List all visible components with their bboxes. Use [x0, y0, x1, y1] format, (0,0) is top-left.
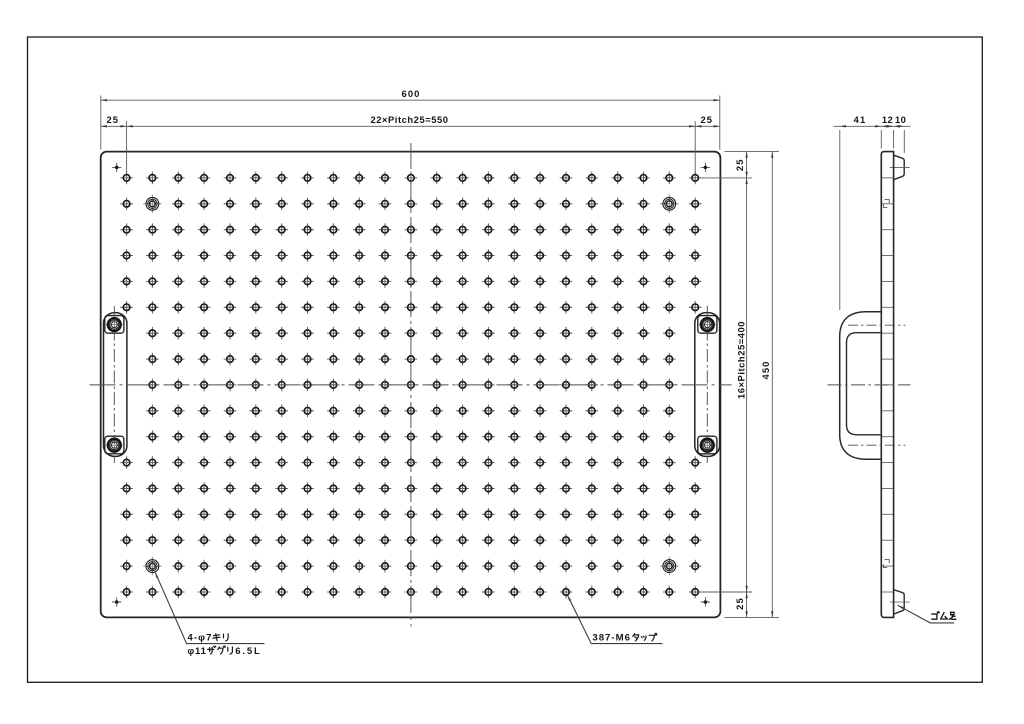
svg-text:387-M6: 387-M6: [592, 633, 631, 644]
svg-text:16×Pitch25=400: 16×Pitch25=400: [735, 321, 746, 399]
svg-text:25: 25: [106, 114, 119, 125]
svg-text:25: 25: [734, 597, 745, 610]
svg-text:25: 25: [700, 114, 713, 125]
svg-text:25: 25: [734, 158, 745, 171]
svg-text:600: 600: [402, 88, 421, 99]
svg-text:22×Pitch25=550: 22×Pitch25=550: [370, 114, 448, 125]
svg-text:450: 450: [760, 361, 771, 380]
svg-text:φ11: φ11: [187, 646, 206, 657]
svg-text:12: 12: [882, 114, 893, 125]
svg-text:4-φ7: 4-φ7: [187, 633, 212, 644]
svg-text:6.5L: 6.5L: [235, 646, 261, 657]
svg-text:10: 10: [895, 114, 906, 125]
svg-text:41: 41: [854, 114, 867, 125]
